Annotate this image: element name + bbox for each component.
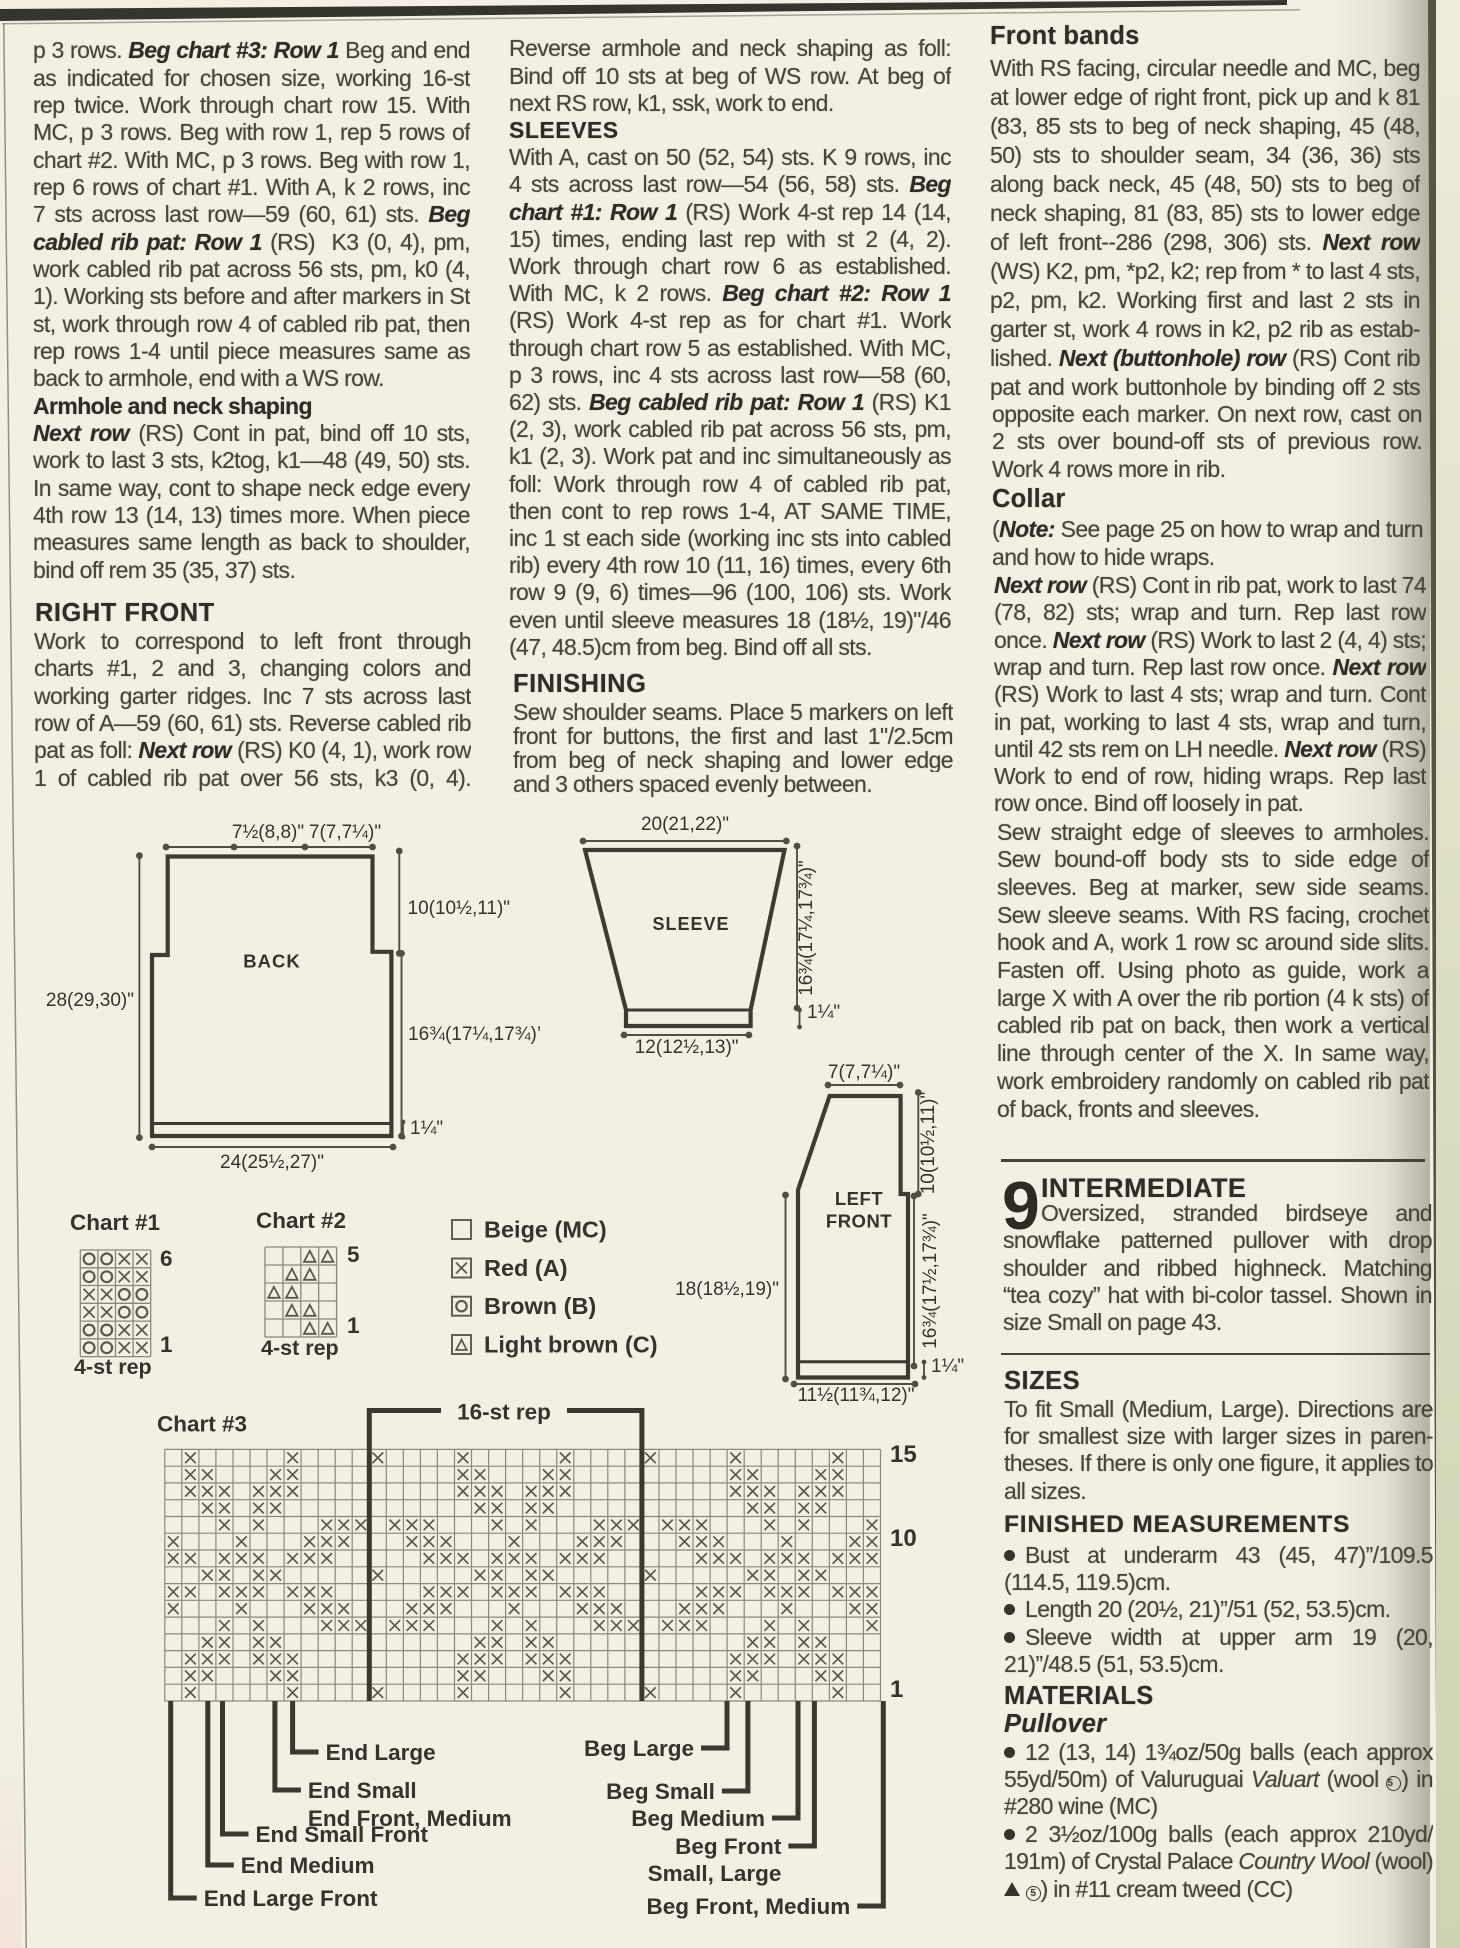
svg-text:Beige (MC): Beige (MC) (484, 1217, 607, 1243)
svg-text:Beg Small: Beg Small (606, 1779, 715, 1804)
svg-text:7(7,7¼)": 7(7,7¼)" (309, 822, 381, 843)
svg-text:Beg Front, Medium: Beg Front, Medium (647, 1894, 851, 1919)
svg-text:16¾(17¼,17¾)": 16¾(17¼,17¾)" (796, 860, 817, 996)
svg-text:10(10½,11)": 10(10½,11)" (918, 1092, 939, 1195)
svg-text:Light brown (C): Light brown (C) (484, 1332, 658, 1358)
svg-text:Chart #2: Chart #2 (256, 1208, 346, 1233)
svg-text:End Small Front: End Small Front (256, 1822, 429, 1847)
svg-text:Beg Medium: Beg Medium (631, 1806, 765, 1831)
svg-text:Brown (B): Brown (B) (484, 1293, 596, 1319)
svg-text:12(12½,13)": 12(12½,13)" (635, 1037, 739, 1058)
svg-text:1: 1 (890, 1676, 903, 1703)
svg-text:10(10½,11)": 10(10½,11)" (408, 898, 511, 919)
svg-text:SLEEVE: SLEEVE (652, 914, 729, 934)
svg-text:BACK: BACK (243, 951, 300, 972)
svg-text:Chart #3: Chart #3 (157, 1412, 247, 1437)
svg-text:Red (A): Red (A) (484, 1255, 568, 1281)
svg-text:Small, Large: Small, Large (648, 1861, 782, 1886)
svg-text:1¼": 1¼" (410, 1118, 443, 1139)
svg-text:1: 1 (347, 1313, 360, 1338)
svg-text:15: 15 (890, 1441, 917, 1468)
svg-text:28(29,30)": 28(29,30)" (46, 990, 134, 1011)
svg-text:End Medium: End Medium (241, 1853, 375, 1878)
svg-text:24(25½,27)": 24(25½,27)" (220, 1152, 324, 1173)
svg-text:10: 10 (890, 1525, 917, 1552)
svg-text:End Large Front: End Large Front (204, 1886, 378, 1911)
svg-text:6: 6 (160, 1246, 173, 1271)
svg-text:18(18½,19)": 18(18½,19)" (675, 1279, 779, 1300)
svg-text:7(7,7¼)": 7(7,7¼)" (828, 1062, 900, 1083)
svg-text:End Small: End Small (308, 1778, 417, 1803)
svg-text:1: 1 (160, 1332, 173, 1357)
svg-text:Chart #1: Chart #1 (70, 1210, 160, 1235)
svg-text:LEFT: LEFT (835, 1188, 883, 1209)
svg-text:4-st rep: 4-st rep (261, 1336, 339, 1360)
svg-text:Beg Front: Beg Front (675, 1834, 782, 1859)
svg-text:7½(8,8)": 7½(8,8)" (232, 822, 304, 843)
svg-text:1¼": 1¼" (931, 1356, 964, 1377)
svg-text:20(21,22)": 20(21,22)" (641, 814, 729, 835)
svg-text:4-st rep: 4-st rep (74, 1355, 152, 1379)
svg-text:Beg Large: Beg Large (584, 1736, 694, 1761)
svg-text:End Large: End Large (326, 1740, 436, 1765)
svg-text:16-st rep: 16-st rep (457, 1400, 551, 1425)
svg-text:5: 5 (347, 1242, 360, 1267)
svg-text:16¾(17½,17¾)": 16¾(17½,17¾)" (920, 1213, 941, 1349)
svg-text:11½(11¾,12)": 11½(11¾,12)" (798, 1385, 915, 1406)
svg-text:1¼": 1¼" (807, 1002, 840, 1023)
svg-text:FRONT: FRONT (826, 1211, 892, 1232)
svg-text:16¾(17¼,17¾)’: 16¾(17¼,17¾)’ (408, 1024, 541, 1045)
